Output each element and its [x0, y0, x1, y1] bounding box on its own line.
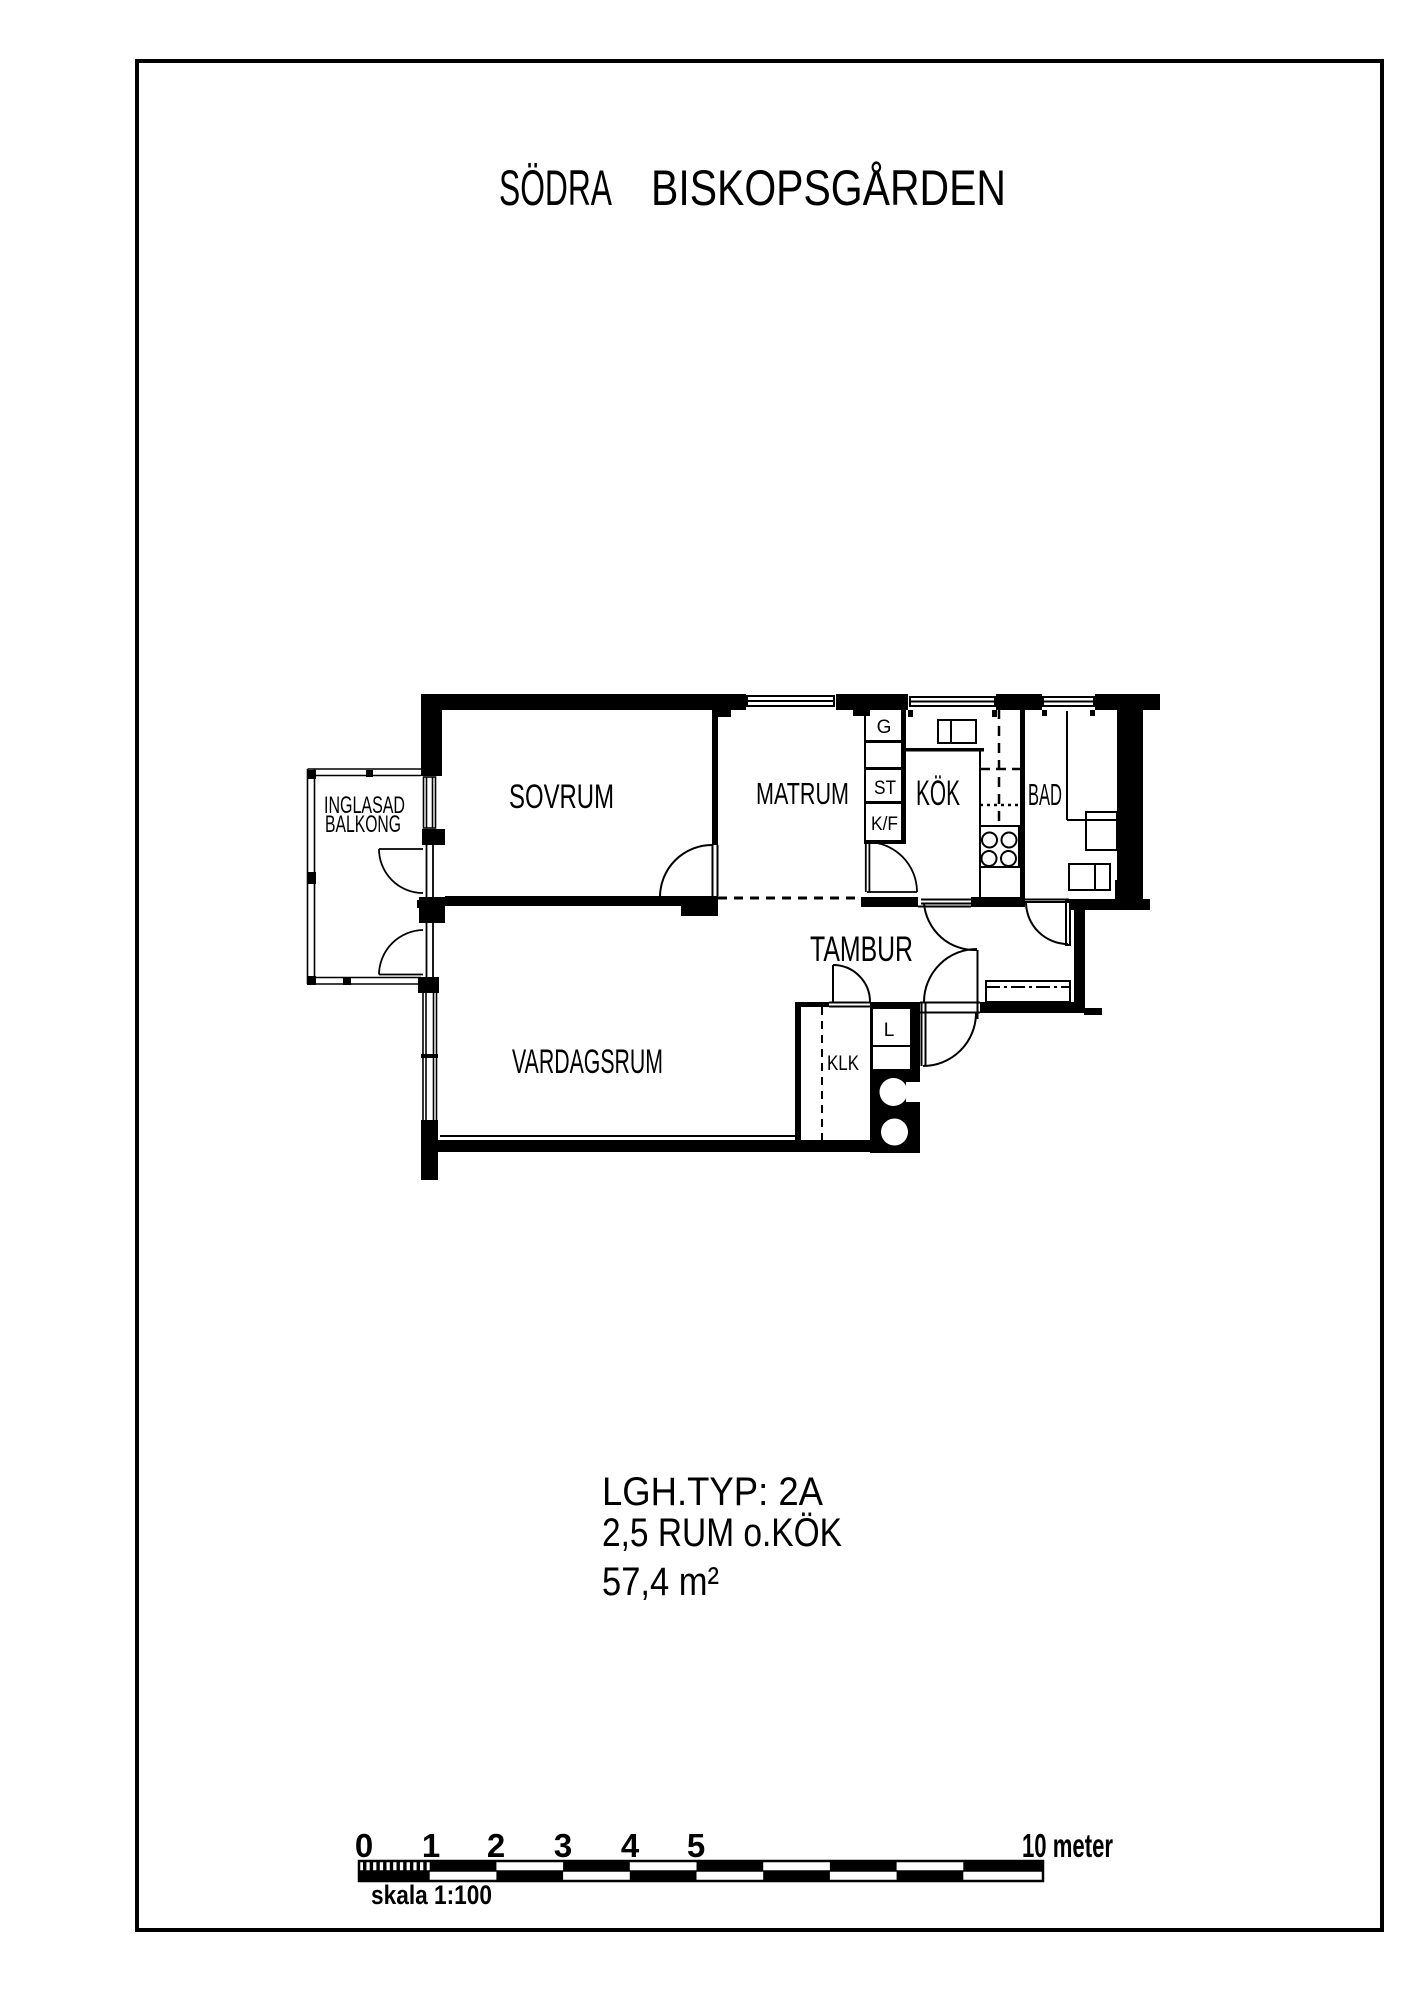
svg-text:K/F: K/F [871, 814, 898, 835]
svg-text:MATRUM: MATRUM [756, 776, 849, 811]
svg-text:LGH.TYP: 2A: LGH.TYP: 2A [602, 1470, 823, 1514]
svg-text:5: 5 [687, 1827, 705, 1864]
svg-text:VARDAGSRUM: VARDAGSRUM [512, 1043, 663, 1081]
svg-text:10 meter: 10 meter [1022, 1827, 1113, 1864]
svg-text:SÖDRA: SÖDRA [499, 160, 612, 216]
svg-text:TAMBUR: TAMBUR [810, 930, 913, 969]
svg-text:G: G [877, 717, 892, 738]
svg-text:1: 1 [422, 1827, 440, 1864]
svg-text:ST: ST [874, 778, 896, 799]
svg-text:L: L [884, 1020, 895, 1041]
svg-text:57,4 m²: 57,4 m² [602, 1560, 719, 1604]
svg-text:3: 3 [554, 1827, 572, 1864]
svg-text:skala 1:100: skala 1:100 [371, 1880, 492, 1910]
svg-text:0: 0 [355, 1827, 373, 1864]
svg-text:BISKOPSGÅRDEN: BISKOPSGÅRDEN [651, 160, 1006, 216]
svg-text:4: 4 [621, 1827, 640, 1864]
svg-text:BAD: BAD [1028, 777, 1062, 812]
svg-text:2,5 RUM o.KÖK: 2,5 RUM o.KÖK [602, 1511, 842, 1555]
svg-text:KLK: KLK [827, 1052, 859, 1075]
svg-text:KÖK: KÖK [916, 774, 960, 813]
svg-text:2: 2 [487, 1827, 505, 1864]
svg-text:BALKONG: BALKONG [325, 811, 401, 838]
svg-text:SOVRUM: SOVRUM [509, 778, 614, 816]
